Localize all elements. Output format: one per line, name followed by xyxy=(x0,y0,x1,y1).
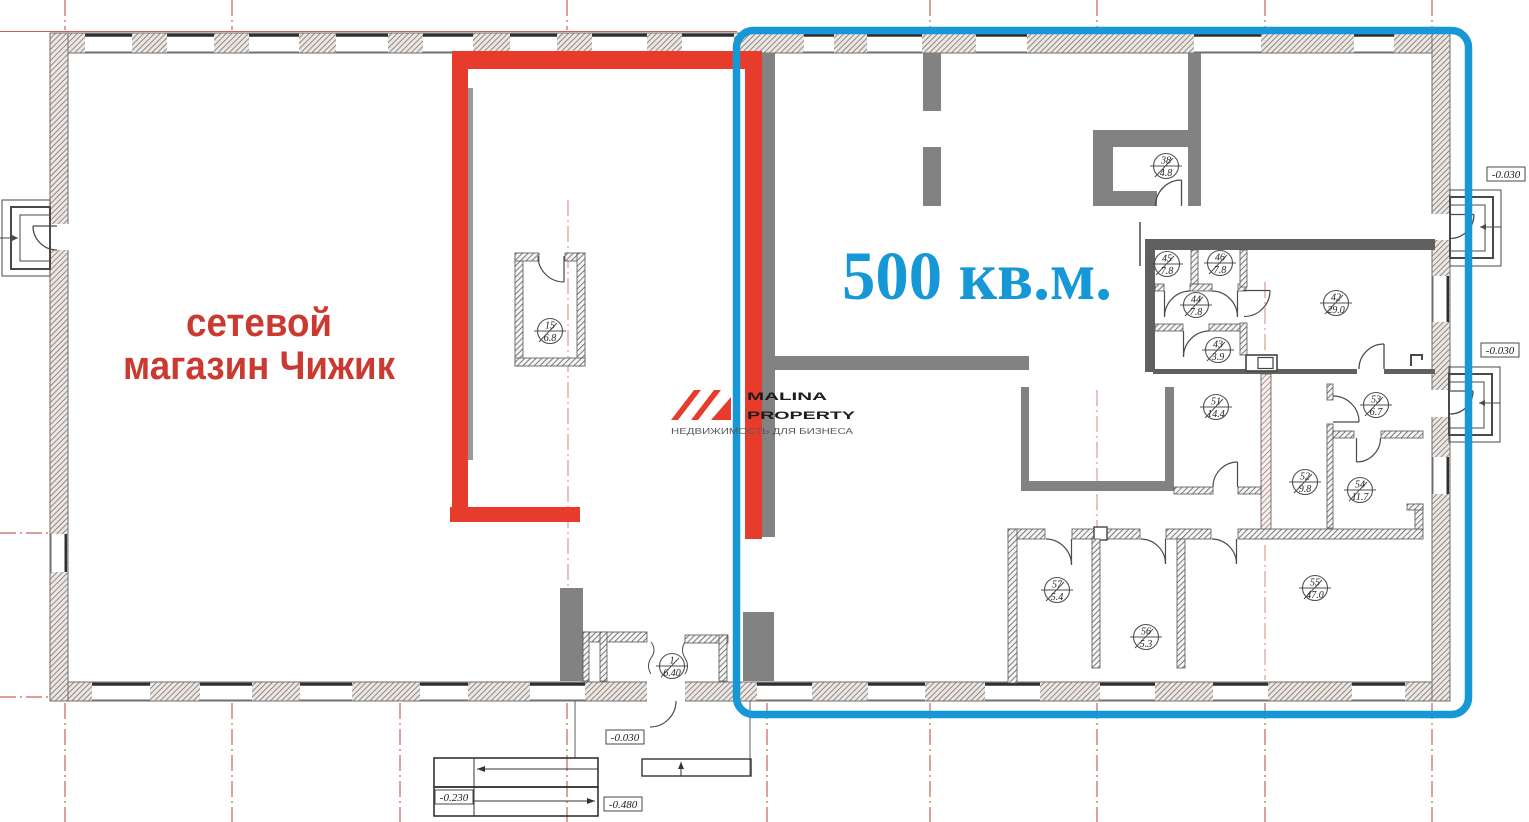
svg-text:6.8: 6.8 xyxy=(544,333,557,344)
svg-text:НЕДВИЖИМОСТЬ ДЛЯ БИЗНЕСА: НЕДВИЖИМОСТЬ ДЛЯ БИЗНЕСА xyxy=(671,426,853,436)
svg-text:500 кв.м.: 500 кв.м. xyxy=(842,238,1112,314)
svg-text:42: 42 xyxy=(1331,293,1341,304)
svg-text:MALINA: MALINA xyxy=(747,391,827,403)
svg-text:44: 44 xyxy=(1191,295,1201,306)
svg-text:7.8: 7.8 xyxy=(1161,266,1174,277)
svg-text:55: 55 xyxy=(1310,578,1320,589)
svg-text:-0.480: -0.480 xyxy=(609,799,638,811)
svg-text:PROPERTY: PROPERTY xyxy=(747,410,856,422)
svg-text:7.8: 7.8 xyxy=(1190,307,1203,318)
svg-text:6.40: 6.40 xyxy=(663,668,681,679)
svg-text:5.3: 5.3 xyxy=(1140,639,1153,650)
svg-text:46: 46 xyxy=(1215,253,1225,264)
svg-text:38: 38 xyxy=(1160,156,1171,167)
svg-text:51: 51 xyxy=(1211,397,1221,408)
svg-text:43: 43 xyxy=(1213,340,1223,351)
svg-text:29.0: 29.0 xyxy=(1327,305,1345,316)
svg-text:11.7: 11.7 xyxy=(1352,492,1370,503)
svg-text:57: 57 xyxy=(1052,580,1063,591)
svg-text:-0.230: -0.230 xyxy=(440,792,469,804)
svg-text:45: 45 xyxy=(1162,254,1172,265)
svg-text:сетевой: сетевой xyxy=(186,301,332,345)
svg-text:-0.030: -0.030 xyxy=(1486,345,1515,357)
svg-text:53: 53 xyxy=(1371,395,1381,406)
svg-text:7.8: 7.8 xyxy=(1214,265,1227,276)
svg-text:1: 1 xyxy=(670,656,675,667)
svg-text:4.8: 4.8 xyxy=(1160,168,1173,179)
svg-text:9.8: 9.8 xyxy=(1299,484,1312,495)
svg-text:3.9: 3.9 xyxy=(1211,352,1225,363)
svg-text:56: 56 xyxy=(1141,627,1151,638)
svg-text:-0.030: -0.030 xyxy=(611,732,640,744)
svg-text:-0.030: -0.030 xyxy=(1492,169,1521,181)
svg-text:54: 54 xyxy=(1355,480,1365,491)
svg-text:магазин Чижик: магазин Чижик xyxy=(123,344,396,388)
svg-text:47.0: 47.0 xyxy=(1306,590,1324,601)
svg-text:14.4: 14.4 xyxy=(1207,409,1225,420)
svg-text:52: 52 xyxy=(1300,472,1310,483)
svg-text:15: 15 xyxy=(545,321,555,332)
svg-text:6.7: 6.7 xyxy=(1370,407,1384,418)
svg-text:5.4: 5.4 xyxy=(1051,592,1064,603)
